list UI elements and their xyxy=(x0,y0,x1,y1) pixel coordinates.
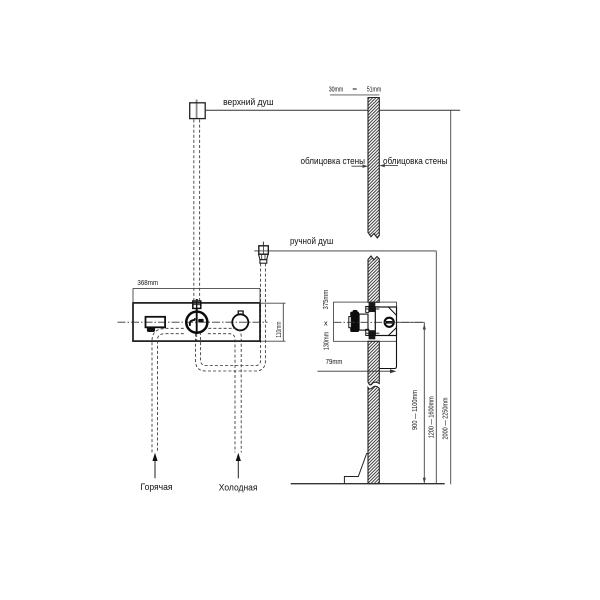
svg-text:2000 — 2250mm: 2000 — 2250mm xyxy=(441,398,450,440)
svg-text:x: x xyxy=(324,318,328,327)
svg-text:30mm: 30mm xyxy=(329,84,344,93)
svg-text:51mm: 51mm xyxy=(367,84,382,93)
svg-text:верхний душ: верхний душ xyxy=(223,97,273,107)
svg-text:облицовка стены: облицовка стены xyxy=(301,156,366,166)
svg-text:900 — 1100mm: 900 — 1100mm xyxy=(410,390,419,430)
svg-text:368mm: 368mm xyxy=(137,278,158,287)
svg-text:110mm: 110mm xyxy=(274,322,283,338)
svg-text:375mm: 375mm xyxy=(321,290,330,310)
svg-text:Горячая: Горячая xyxy=(141,482,173,492)
svg-text:Холодная: Холодная xyxy=(219,482,258,492)
svg-text:ручной душ: ручной душ xyxy=(290,236,333,246)
svg-text:1200 — 1600mm: 1200 — 1600mm xyxy=(427,396,436,438)
svg-text:облицовка стены: облицовка стены xyxy=(383,156,448,166)
svg-text:79mm: 79mm xyxy=(326,357,343,366)
svg-text:130mm: 130mm xyxy=(322,332,331,351)
